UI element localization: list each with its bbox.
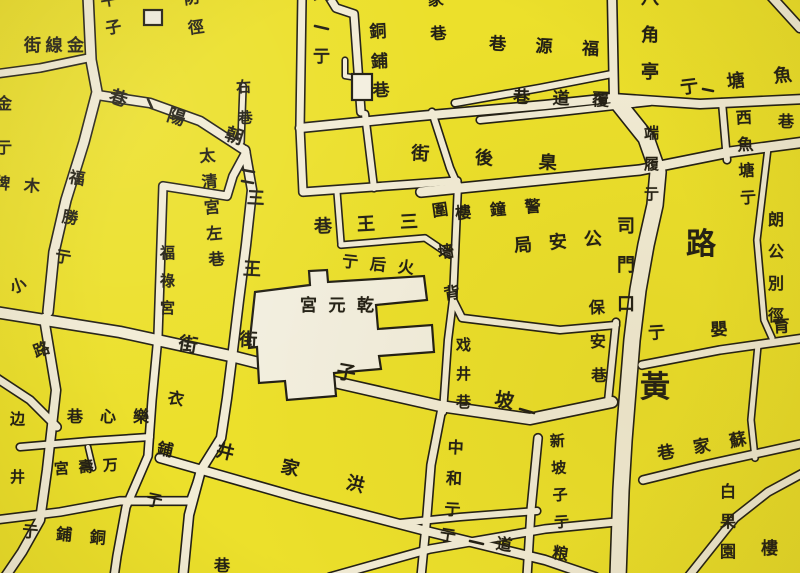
street-label-char: 警 xyxy=(524,198,541,215)
street-label-huohoujie: 火后亍 xyxy=(341,253,414,276)
street-label-char: 安 xyxy=(590,334,607,351)
street-label-char: 黃 xyxy=(640,373,670,403)
street-label-liangdaojie: 粮道亍 xyxy=(439,527,570,563)
street-label-char: 臬 xyxy=(538,154,557,173)
street-label-char: 亍 xyxy=(644,187,659,202)
street-label-xiyutangjie: 西魚塘亍 xyxy=(734,110,759,207)
street-label-char: 右 xyxy=(236,80,252,96)
street-label-char: 中 xyxy=(447,440,464,457)
street-label-char: 銅 xyxy=(89,529,106,546)
street-label-niehoujie: 臬後街 xyxy=(411,145,558,173)
street-label-char: 墻 xyxy=(437,243,455,261)
street-label-char: 巷 xyxy=(778,114,794,130)
street-label-qianyuangong: 乾元宮 xyxy=(300,298,374,315)
street-label-char: 亍 xyxy=(439,527,457,545)
street-label-taiqinggongzuoxiang: 太清宮左巷 xyxy=(197,147,227,268)
street-label-char: 果 xyxy=(720,514,736,530)
street-label-simenkou: 司門口 xyxy=(615,218,637,314)
street-label-char: 粮 xyxy=(551,545,569,563)
street-label-char: 塘 xyxy=(726,72,746,92)
street-label-char: 左 xyxy=(206,225,223,242)
street-label-xinpozijie: 新坡子亍 xyxy=(548,434,572,531)
street-label-char: 亍 xyxy=(21,523,38,540)
street-label-char: 鋪 xyxy=(55,526,72,543)
street-label-char: 巷 xyxy=(591,368,608,385)
street-label-char: 三 xyxy=(399,213,418,232)
street-label-char: 口 xyxy=(617,296,635,314)
street-label-char: 魚 xyxy=(737,136,754,153)
street-label-char: 巷 xyxy=(237,111,253,127)
street-label-char: 端 xyxy=(644,126,659,141)
street-label-char: 家 xyxy=(692,438,712,458)
street-label-char: 平 xyxy=(99,0,118,9)
street-label-sanwangxiang: 三王巷 xyxy=(314,213,419,236)
street-label-duanlvjie: 端履亍 xyxy=(642,126,661,202)
street-label-char: 巷 xyxy=(430,25,447,42)
street-label-char: 朝 xyxy=(223,126,246,149)
street-label-char: 元 xyxy=(329,298,346,315)
street-label-char: 三 xyxy=(246,190,265,209)
street-label-fulugong: 福祿宮 xyxy=(158,246,177,316)
street-label-char: 鋪 xyxy=(371,53,389,71)
street-label-char: 子 xyxy=(552,488,568,504)
street-label-char: 公 xyxy=(768,244,784,260)
street-label-langgongbiejing: 朗公別徑 xyxy=(766,212,786,324)
street-label-char: 保 xyxy=(589,300,606,317)
street-label-tongpuxiang: 銅鋪巷 xyxy=(367,24,392,101)
street-label-char: 角 xyxy=(641,27,659,45)
street-label-char: 和 xyxy=(446,471,463,488)
street-label-jinjie-left: 金亍 xyxy=(0,96,14,156)
street-label-char: 鐘 xyxy=(489,201,506,218)
street-label-char: 巷 xyxy=(513,89,531,107)
street-label-char: 王 xyxy=(357,216,376,235)
street-label-sanwangjie: 三王街 xyxy=(237,190,267,351)
street-label-char: 福 xyxy=(160,246,175,261)
street-label-char: 乾 xyxy=(357,298,374,315)
street-label-xingjie: 興亍 xyxy=(311,0,332,66)
street-label-fushengjie: 福勝亍 xyxy=(52,169,88,267)
street-label-char: 祿 xyxy=(160,274,175,289)
street-label-char: 王 xyxy=(243,261,262,280)
street-label-char: 魚 xyxy=(773,66,793,86)
street-label-char: 亍 xyxy=(554,515,570,531)
street-label-char: 樓 xyxy=(454,204,471,221)
street-label-char: 新 xyxy=(549,434,565,450)
street-label-char: 亍 xyxy=(341,253,359,271)
street-label-char: 背 xyxy=(443,285,461,303)
street-label-char: 亍 xyxy=(740,190,757,207)
street-label-wanshougong: 万壽宮 xyxy=(54,458,119,477)
street-label-char: 街 xyxy=(177,335,199,357)
street-label-char: 路 xyxy=(31,340,52,361)
street-label-yipujie: 衣鋪亍 xyxy=(143,389,188,511)
street-label-char: 巷 xyxy=(67,409,83,425)
street-label-char: 白 xyxy=(720,484,736,500)
street-label-char: 線 xyxy=(46,38,63,55)
street-label-jinxianjie: 金線街 xyxy=(24,38,84,55)
street-label-lexinxiang: 樂心巷 xyxy=(67,409,149,425)
street-label-xiang-bottom: 巷 xyxy=(214,558,230,573)
street-label-char: 井 xyxy=(456,367,471,382)
street-label-char: 亍 xyxy=(444,502,461,519)
street-label-char: 安 xyxy=(548,233,568,253)
street-label-bian: 边 xyxy=(10,412,25,427)
street-label-bajiaoting: 八角亭 xyxy=(639,0,661,82)
street-label-char: 別 xyxy=(768,276,784,292)
street-label-gonganju: 公安局 xyxy=(513,230,602,256)
street-label-char: 公 xyxy=(583,230,603,250)
street-label-char: 樓 xyxy=(761,541,778,558)
street-label-fuyuanxiang: 福源巷 xyxy=(489,36,600,59)
street-label-lu-big: 路 xyxy=(686,230,716,260)
street-label-char: 坡 xyxy=(551,461,567,477)
street-label-char: 巷 xyxy=(208,251,225,268)
street-label-char: 巷 xyxy=(372,83,390,101)
street-label-huang-big: 黃 xyxy=(640,373,670,403)
street-label-char: 鋪 xyxy=(155,441,174,460)
street-label-jiaxiang: 家巷 xyxy=(425,0,449,43)
street-label-char: 福 xyxy=(582,41,600,59)
street-label-char: 牌 xyxy=(0,175,11,192)
street-label-char: 衣 xyxy=(166,390,185,409)
street-label-zhonghejie: 中和亍 xyxy=(442,440,466,519)
street-label-char: 防 xyxy=(183,0,201,7)
street-label-char: 亍 xyxy=(0,140,12,156)
street-label-baiguoyuan: 白果園 xyxy=(718,484,738,560)
street-label-char: 巷 xyxy=(214,558,230,573)
street-label-xiaolu: 小路 xyxy=(6,275,54,361)
street-label-char: 勝 xyxy=(61,209,80,228)
street-label-char: 局 xyxy=(513,236,533,256)
street-label-char: 万 xyxy=(102,458,118,474)
street-label-char: 子 xyxy=(335,362,357,384)
street-label-char: 街 xyxy=(24,38,41,55)
street-label-char: 履 xyxy=(644,157,659,172)
street-label-char: 覆 xyxy=(592,92,610,110)
street-label-pingzi: 平子 xyxy=(97,0,124,37)
street-label-tongpujie: 銅鋪亍 xyxy=(21,523,106,546)
street-label-youxiang: 右巷 xyxy=(234,80,255,127)
street-label-char: 亍 xyxy=(648,325,666,343)
street-label-xiang-right: 巷 xyxy=(778,114,794,130)
street-label-char: 司 xyxy=(617,218,635,236)
street-label-char: 亍 xyxy=(145,491,164,510)
street-label-char: 道 xyxy=(552,91,570,109)
street-label-char: 園 xyxy=(720,544,736,560)
street-label-char: 圍 xyxy=(431,201,449,219)
street-label-char: 陽 xyxy=(165,107,188,130)
street-label-char: 心 xyxy=(100,409,116,425)
street-label-char: 子 xyxy=(104,19,123,38)
street-label-char: 洪 xyxy=(344,474,366,496)
street-label-fudaoxiang: 覆道巷 xyxy=(513,89,610,109)
street-label-char: 銅 xyxy=(369,24,387,42)
street-label-char: 巷 xyxy=(107,88,130,111)
street-label-char: 金 xyxy=(67,38,84,55)
street-label-char: 家 xyxy=(279,458,301,480)
street-label-char: 西 xyxy=(735,110,752,127)
street-label-char: 巷 xyxy=(489,36,507,54)
street-label-char: 育 xyxy=(772,318,790,336)
street-label-char: 宮 xyxy=(54,461,70,477)
street-label-mupai: 木牌 xyxy=(0,175,41,195)
street-label-char: 源 xyxy=(535,39,553,57)
street-label-char: 徑 xyxy=(187,19,205,37)
street-label-char: 門 xyxy=(617,257,635,275)
street-label-char: 亍 xyxy=(54,248,73,267)
street-labels-layer: 金線街平子防徑興亍家巷銅鋪巷魚塘亍福源巷八角亭覆道巷西魚塘亍巷右巷朝陽巷太清宮左… xyxy=(0,0,800,573)
street-label-char: 巷 xyxy=(314,218,333,237)
street-label-chaoyangxiang: 朝陽巷 xyxy=(107,88,246,148)
street-label-char: 蘇 xyxy=(728,431,748,451)
street-label-jingzhonglou: 警鐘樓 xyxy=(454,198,541,221)
street-label-char: 道 xyxy=(495,536,513,554)
street-label-yuyingjie: 育嬰亍 xyxy=(648,318,791,342)
street-label-char: 后 xyxy=(369,256,387,274)
street-label-char: 边 xyxy=(10,412,25,427)
street-label-char: 木 xyxy=(23,178,40,195)
street-label-char: 福 xyxy=(68,169,87,188)
street-label-char: 宮 xyxy=(203,199,220,216)
street-label-char: 樂 xyxy=(133,409,149,425)
street-label-char: 家 xyxy=(427,0,444,9)
street-label-char: 宮 xyxy=(300,298,317,315)
street-label-char: 興 xyxy=(313,0,330,3)
street-label-hongjiajing: 洪家井 xyxy=(214,442,366,496)
street-label-char: 亍 xyxy=(679,78,699,98)
street-label-char: 巷 xyxy=(656,444,676,464)
street-label-char: 街 xyxy=(411,145,430,164)
street-label-char: 路 xyxy=(686,230,716,260)
street-label-char: 火 xyxy=(397,259,415,277)
street-label-char: 井 xyxy=(10,470,25,485)
street-label-char: 八 xyxy=(641,0,659,8)
street-label-fangjing: 防徑 xyxy=(181,0,207,37)
street-label-jing-left: 井 xyxy=(10,470,25,485)
street-label-char: 金 xyxy=(0,96,12,112)
street-label-char: 坡 xyxy=(493,390,515,412)
street-label-baoanxiang: 保安巷 xyxy=(587,300,610,385)
street-label-char: 清 xyxy=(201,173,218,190)
street-label-char: 塘 xyxy=(738,163,755,180)
street-label-char: 朗 xyxy=(768,212,784,228)
street-label-char: 嬰 xyxy=(710,322,728,340)
street-label-char: 後 xyxy=(474,149,493,168)
street-label-char: 太 xyxy=(199,148,216,165)
street-label-yutangjie: 魚塘亍 xyxy=(679,66,792,98)
historical-map: 金線街平子防徑興亍家巷銅鋪巷魚塘亍福源巷八角亭覆道巷西魚塘亍巷右巷朝陽巷太清宮左… xyxy=(0,0,800,573)
street-label-char: 壽 xyxy=(78,459,94,475)
street-label-lou-partial: 樓 xyxy=(761,541,778,558)
street-label-char: 宮 xyxy=(160,301,175,316)
street-label-char: 小 xyxy=(8,276,29,297)
street-label-sujiaxiang: 蘇家巷 xyxy=(656,431,748,463)
street-label-char: 井 xyxy=(214,442,236,464)
street-label-char: 亍 xyxy=(313,49,330,66)
street-label-char: 戏 xyxy=(456,338,471,353)
street-label-char: 亭 xyxy=(641,64,659,82)
